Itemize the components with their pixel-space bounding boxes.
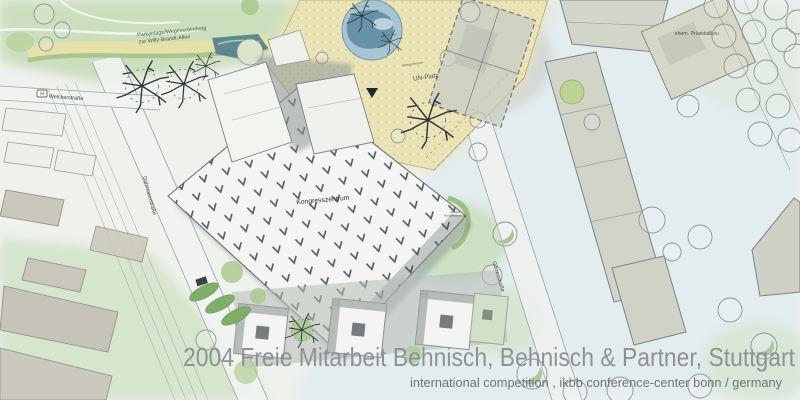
caption-title: 2004 Freie Mitarbeit Behnisch, Behnisch … — [183, 342, 796, 372]
bus-stop-icon: H — [37, 90, 47, 98]
site-plan-page: ehem. Präsidialbau Ko — [0, 0, 800, 400]
drop-off-label-line2: Kongresszentrum — [444, 214, 467, 218]
svg-text:H: H — [40, 92, 44, 98]
site-plan-drawing: ehem. Präsidialbau Ko — [0, 0, 800, 400]
caption-subtitle: international competition , ikbb confere… — [410, 375, 782, 390]
